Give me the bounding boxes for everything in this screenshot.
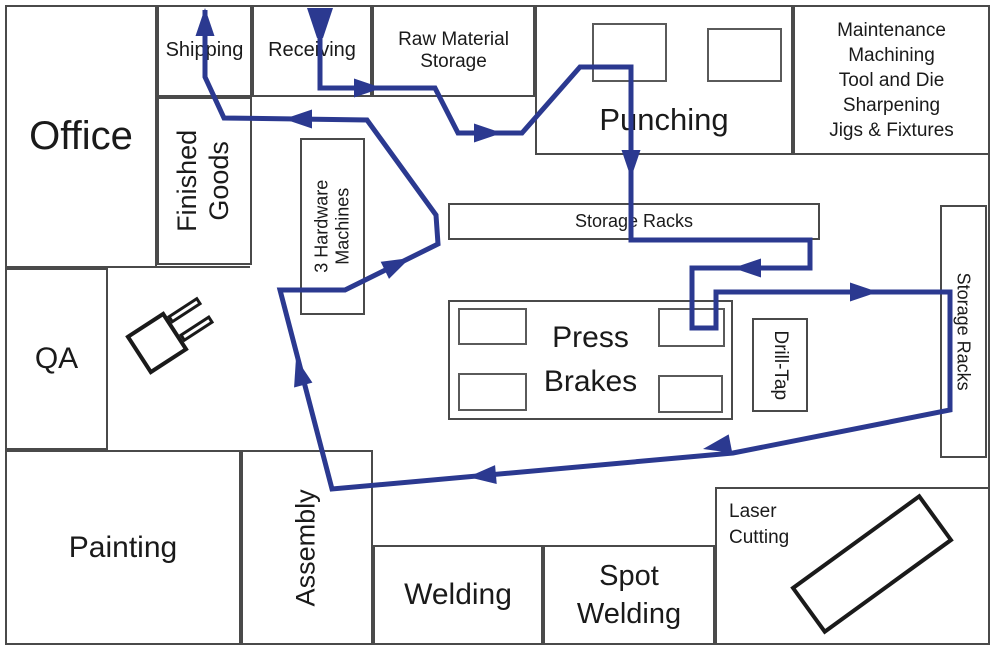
room-assembly: Assembly bbox=[241, 450, 373, 645]
room-drill-tap-label: Drill-Tap bbox=[769, 330, 791, 400]
room-laser-cutting-label: Laser Cutting bbox=[729, 499, 789, 551]
room-welding-label: Welding bbox=[404, 577, 512, 612]
room-spot-welding-label: Spot Welding bbox=[577, 557, 681, 633]
storage-racks-horizontal-label: Storage Racks bbox=[575, 211, 693, 232]
room-assembly-label: Assembly bbox=[291, 489, 323, 606]
punching-machine-rect-2 bbox=[707, 28, 782, 82]
room-shipping: Shipping bbox=[157, 5, 252, 97]
room-finished-goods: Finished Goods bbox=[157, 97, 252, 265]
room-qa-label: QA bbox=[35, 341, 78, 376]
room-maintenance-label: Maintenance Machining Tool and Die Sharp… bbox=[829, 18, 954, 143]
room-3-hardware-machines-label: 3 Hardware Machines bbox=[311, 180, 353, 273]
room-qa: QA bbox=[5, 268, 108, 450]
room-welding: Welding bbox=[373, 545, 543, 645]
punching-machine-rect-1 bbox=[592, 23, 667, 82]
room-raw-material-storage-label: Raw Material Storage bbox=[398, 29, 509, 74]
storage-racks-vertical-label: Storage Racks bbox=[953, 272, 974, 390]
machine-prong bbox=[179, 315, 214, 342]
storage-racks-horizontal: Storage Racks bbox=[448, 203, 820, 240]
room-punching-label: Punching bbox=[599, 102, 728, 139]
room-maintenance: Maintenance Machining Tool and Die Sharp… bbox=[793, 5, 990, 155]
machine-area-top-line bbox=[108, 266, 250, 270]
room-shipping-label: Shipping bbox=[166, 39, 244, 63]
room-office-label: Office bbox=[29, 113, 133, 160]
room-3-hardware-machines: 3 Hardware Machines bbox=[300, 138, 365, 315]
storage-racks-vertical: Storage Racks bbox=[940, 205, 987, 458]
facility-layout-diagram: Office Shipping Receiving Raw Material S… bbox=[0, 0, 1000, 651]
room-painting-label: Painting bbox=[69, 530, 177, 565]
room-office: Office bbox=[5, 5, 157, 268]
press-brake-rect-bottom-left bbox=[458, 373, 527, 411]
room-drill-tap: Drill-Tap bbox=[752, 318, 808, 412]
press-brake-rect-top-left bbox=[458, 308, 527, 345]
press-brake-rect-top-right bbox=[658, 308, 725, 347]
press-brake-rect-bottom-right bbox=[658, 375, 723, 413]
room-raw-material-storage: Raw Material Storage bbox=[372, 5, 535, 97]
room-receiving: Receiving bbox=[252, 5, 372, 97]
room-finished-goods-label: Finished Goods bbox=[173, 130, 237, 232]
room-receiving-label: Receiving bbox=[268, 39, 356, 63]
room-spot-welding: Spot Welding bbox=[543, 545, 715, 645]
room-press-brakes-label: Press Brakes bbox=[544, 316, 637, 404]
room-painting: Painting bbox=[5, 450, 241, 645]
